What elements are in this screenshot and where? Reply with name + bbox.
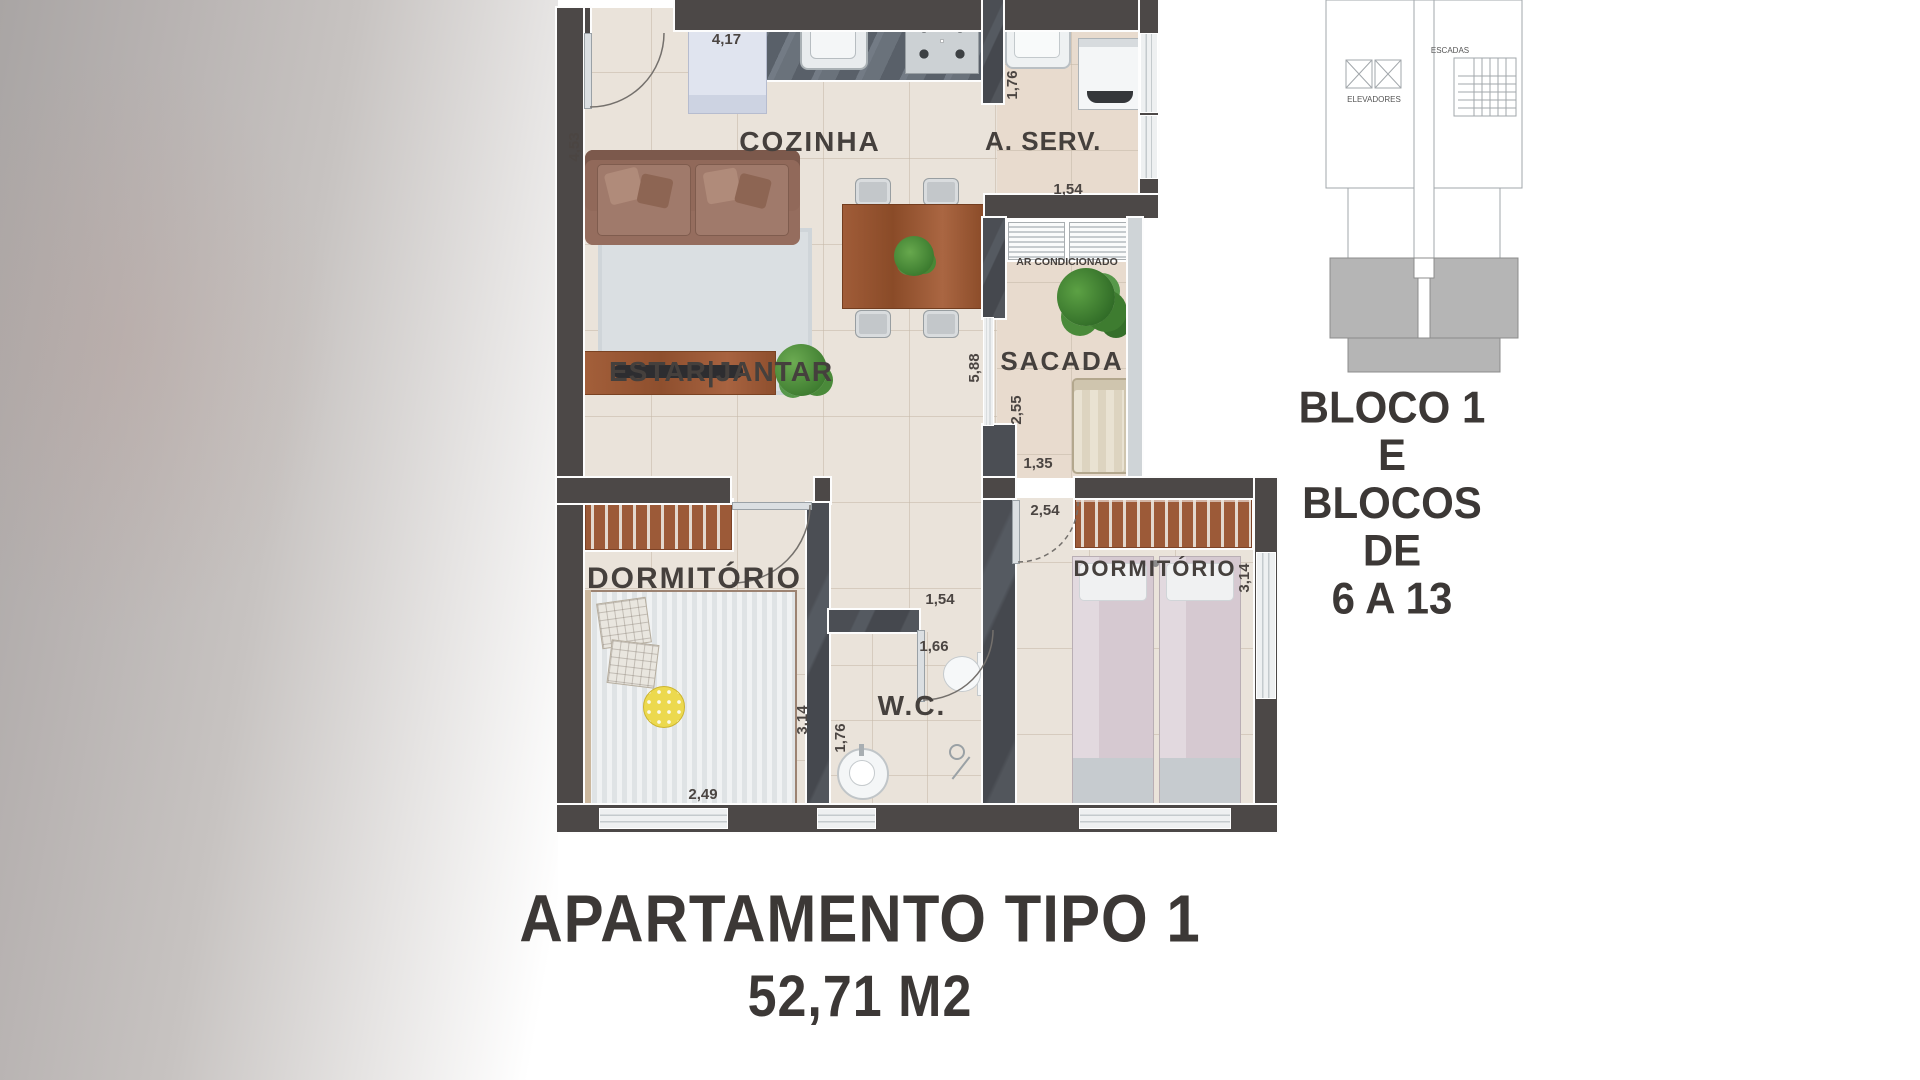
block-caption: BLOCO 1 E BLOCOS DE 6 A 13 xyxy=(1272,383,1512,622)
title-block: APARTAMENTO TIPO 1 52,71 M2 xyxy=(440,884,1280,1027)
stairs-hatch-icon xyxy=(1458,58,1516,116)
dim-balcony-bottom: 1,35 xyxy=(1010,455,1066,472)
highlighted-unit-lower xyxy=(1348,338,1500,372)
dim-balcony-height: 2,55 xyxy=(1008,382,1026,438)
room-label-balcony: SACADA xyxy=(997,346,1127,377)
dim-bedroom-left-side: 3,14 xyxy=(794,692,812,748)
stairs-label: ESCADAS xyxy=(1431,46,1469,55)
room-label-kitchen: COZINHA xyxy=(735,126,885,158)
keyplan-left-lower xyxy=(1348,188,1414,258)
elevators-label: ELEVADORES xyxy=(1347,95,1401,104)
dim-service-height: 1,76 xyxy=(1004,57,1022,113)
dim-bedroom-right-top: 2,54 xyxy=(1017,502,1073,519)
highlighted-unit xyxy=(1430,258,1518,338)
keyplan-right-wing xyxy=(1434,0,1522,188)
dim-kitchen-width: 4,17 xyxy=(688,31,765,48)
keyplan-corridor-notch xyxy=(1414,258,1434,278)
door-swing-arc xyxy=(590,33,664,107)
keyplan-corridor xyxy=(1414,0,1434,258)
room-label-bedroom-right: DORMITÓRIO xyxy=(1057,556,1253,582)
dim-hall-width: 1,54 xyxy=(912,591,968,608)
room-label-bedroom-left: DORMITÓRIO xyxy=(587,562,793,596)
dim-bedroom-right-side: 3,14 xyxy=(1236,550,1254,606)
caption-line: E xyxy=(1272,431,1512,479)
floor-plan-poster: COZINHA A. SERV. ESTAR|JANTAR SACADA AR … xyxy=(0,0,1920,1080)
room-label-ac: AR CONDICIONADO xyxy=(1003,256,1131,268)
keyplan-right-lower xyxy=(1434,188,1500,258)
elevator-x-icon xyxy=(1346,60,1372,88)
dim-wc-height: 1,76 xyxy=(832,710,850,766)
elevator-x-icon xyxy=(1375,60,1401,88)
dim-bedroom-left-bottom: 2,49 xyxy=(675,786,731,803)
caption-line: BLOCOS xyxy=(1272,479,1512,527)
caption-line: 6 A 13 xyxy=(1272,574,1512,622)
dim-service-bottom: 1,54 xyxy=(1040,181,1096,198)
highlighted-unit xyxy=(1330,258,1418,338)
caption-line: DE xyxy=(1272,526,1512,574)
room-label-bathroom: W.C. xyxy=(832,690,992,722)
room-label-living: ESTAR|JANTAR xyxy=(609,356,809,388)
dim-wc-width: 1,66 xyxy=(906,638,962,655)
caption-line: BLOCO 1 xyxy=(1272,383,1512,431)
room-label-service: A. SERV. xyxy=(985,126,1095,157)
poster-area: 52,71 M2 xyxy=(440,963,1280,1030)
stairs-box xyxy=(1454,58,1516,116)
dim-living-height: 5,88 xyxy=(966,340,984,396)
dim-kitchen-left-height: 4,53 xyxy=(566,119,584,175)
poster-title: APARTAMENTO TIPO 1 xyxy=(440,880,1280,957)
building-key-plan: ELEVADORES ESCADAS xyxy=(1318,0,1530,378)
apartment-floor-plan: COZINHA A. SERV. ESTAR|JANTAR SACADA AR … xyxy=(557,0,1277,832)
keyplan-left-wing xyxy=(1326,0,1414,188)
